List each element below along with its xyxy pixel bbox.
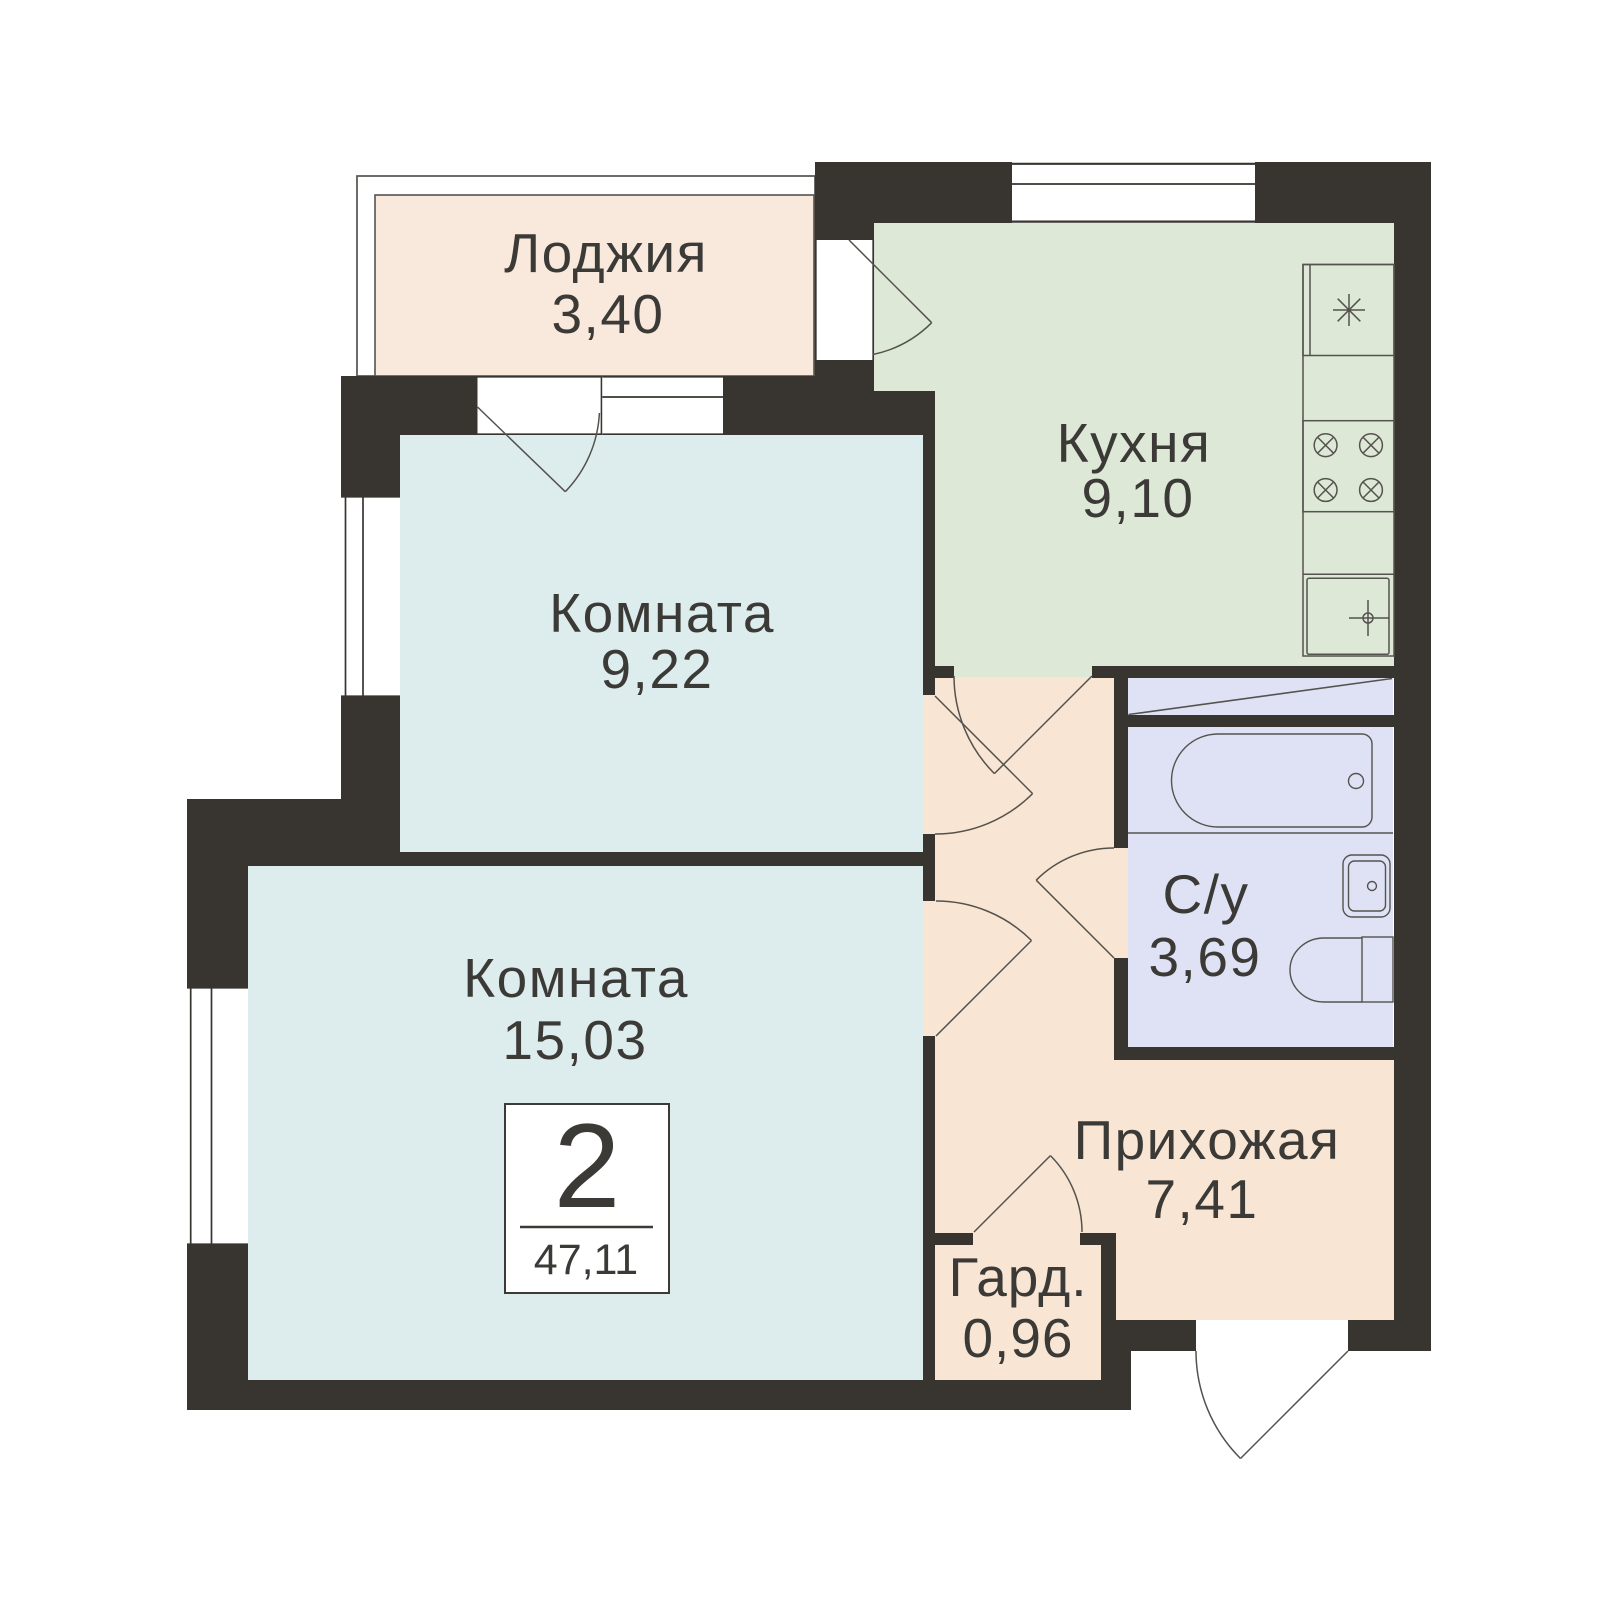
svg-text:3,40: 3,40 <box>551 283 664 345</box>
svg-text:Кухня: Кухня <box>1057 412 1212 474</box>
svg-text:3,69: 3,69 <box>1148 926 1261 988</box>
svg-text:0,96: 0,96 <box>962 1307 1073 1369</box>
svg-text:С/у: С/у <box>1163 863 1250 925</box>
svg-text:Прихожая: Прихожая <box>1074 1109 1341 1171</box>
svg-text:Комната: Комната <box>549 582 775 644</box>
svg-text:2: 2 <box>554 1099 621 1233</box>
svg-text:9,22: 9,22 <box>600 638 713 700</box>
svg-text:15,03: 15,03 <box>502 1009 647 1071</box>
svg-text:9,10: 9,10 <box>1081 467 1194 529</box>
svg-text:47,11: 47,11 <box>534 1236 638 1284</box>
svg-text:Лоджия: Лоджия <box>504 222 708 284</box>
svg-text:Гард.: Гард. <box>949 1246 1088 1308</box>
svg-text:7,41: 7,41 <box>1145 1168 1258 1230</box>
svg-text:Комната: Комната <box>463 947 689 1009</box>
